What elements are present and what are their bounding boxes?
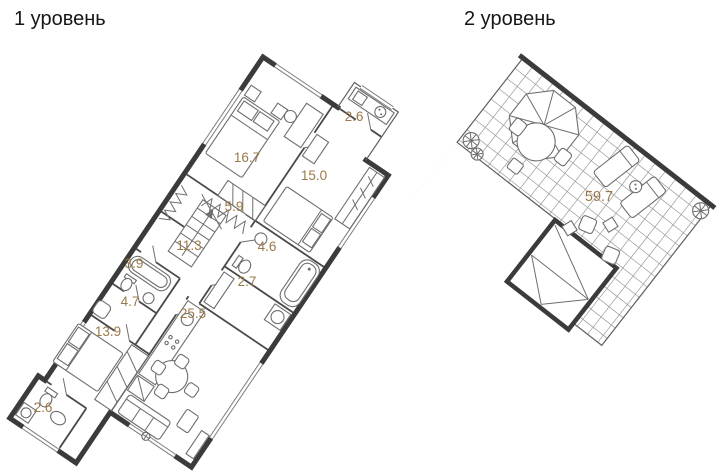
area-label-living-kitchen: 25.5: [180, 306, 206, 321]
staircase: [165, 194, 232, 269]
area-label-bathroom-left: 3.9: [125, 256, 144, 271]
area-label-laundry: 2.7: [238, 274, 257, 289]
area-label-hall-lower: 4.7: [121, 294, 140, 309]
room-right-furniture: [260, 133, 384, 264]
area-label-bathroom-mid: 4.6: [258, 239, 277, 254]
level2-plan: [407, 57, 714, 354]
area-label-bedroom-bottom: 13.9: [95, 324, 121, 339]
living-kitchen-furniture: [110, 301, 265, 469]
area-label-hall-upper: 5.9: [225, 199, 244, 214]
area-label-bedroom-top: 16.7: [234, 150, 260, 165]
area-label-terrace: 59.7: [585, 189, 613, 205]
level1-plan: [9, 26, 423, 472]
area-label-bathroom-bottom: 2.6: [34, 400, 53, 415]
area-label-balcony-top: 2.6: [345, 109, 364, 124]
level1-title: 1 уровень: [14, 8, 106, 30]
area-label-room-right: 15.0: [301, 168, 327, 183]
area-label-stair-hall: 11.3: [176, 238, 201, 253]
floorplan-canvas: 1 уровень 2 уровень 16.7 15.0 2.6 5.9 11…: [0, 0, 720, 472]
floorplan-svg: 1 уровень 2 уровень 16.7 15.0 2.6 5.9 11…: [0, 0, 720, 472]
level2-title: 2 уровень: [464, 8, 556, 30]
